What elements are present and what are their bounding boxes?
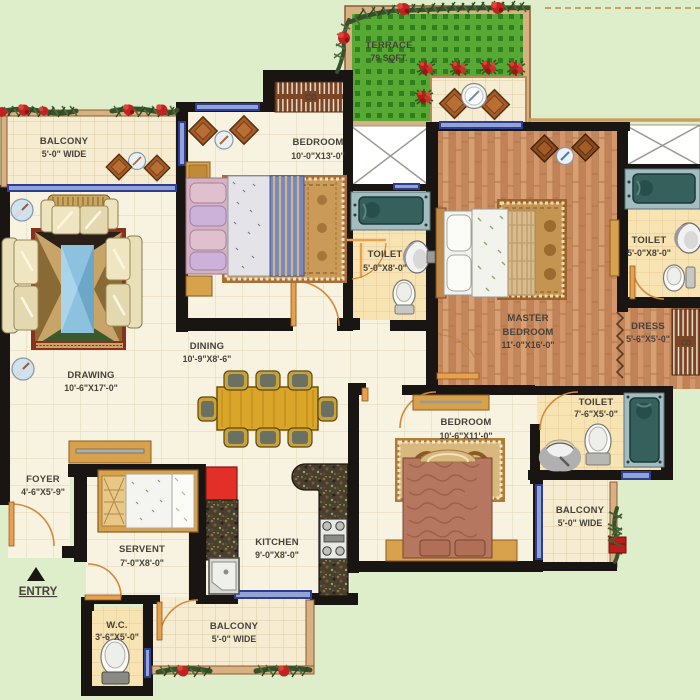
svg-text:KITCHEN: KITCHEN bbox=[255, 537, 299, 548]
svg-text:TOILET: TOILET bbox=[368, 249, 403, 260]
svg-text:10'-0"X13'-0": 10'-0"X13'-0" bbox=[291, 151, 345, 161]
svg-text:10'-6"X17'-0": 10'-6"X17'-0" bbox=[64, 383, 118, 393]
svg-text:CD: CD bbox=[305, 93, 317, 102]
svg-text:3'-6"X5'-0": 3'-6"X5'-0" bbox=[95, 632, 139, 642]
svg-text:BEDROOM: BEDROOM bbox=[502, 327, 553, 338]
svg-text:TOILET: TOILET bbox=[579, 397, 614, 408]
svg-text:CD: CD bbox=[681, 340, 691, 347]
svg-text:SERVENT: SERVENT bbox=[119, 544, 165, 555]
svg-text:11'-0"X16'-0": 11'-0"X16'-0" bbox=[501, 340, 554, 350]
svg-text:W.C.: W.C. bbox=[106, 620, 127, 631]
svg-text:5'-0" WIDE: 5'-0" WIDE bbox=[558, 518, 603, 528]
svg-text:7'-6"X5'-0": 7'-6"X5'-0" bbox=[574, 409, 618, 419]
svg-text:5'-6"X5'-0": 5'-6"X5'-0" bbox=[626, 334, 670, 344]
svg-text:10'-6"X11'-0": 10'-6"X11'-0" bbox=[439, 431, 492, 441]
svg-text:5'-0" WIDE: 5'-0" WIDE bbox=[42, 149, 87, 159]
svg-text:TOILET: TOILET bbox=[632, 235, 667, 246]
svg-text:10'-9"X8'-6": 10'-9"X8'-6" bbox=[183, 354, 232, 364]
svg-text:7'-0"X8'-0": 7'-0"X8'-0" bbox=[120, 558, 164, 568]
svg-text:BALCONY: BALCONY bbox=[40, 136, 89, 147]
svg-text:79 SQFT.: 79 SQFT. bbox=[370, 53, 407, 63]
svg-text:BEDROOM: BEDROOM bbox=[440, 417, 491, 428]
svg-text:5'-0"X8'-0": 5'-0"X8'-0" bbox=[363, 263, 407, 273]
svg-text:MASTER: MASTER bbox=[507, 313, 548, 324]
svg-text:DRAWING: DRAWING bbox=[67, 370, 114, 381]
svg-text:BEDROOM: BEDROOM bbox=[292, 137, 343, 148]
svg-text:5'-0"X8'-0": 5'-0"X8'-0" bbox=[627, 248, 671, 258]
svg-text:BALCONY: BALCONY bbox=[556, 505, 605, 516]
svg-text:DINING: DINING bbox=[190, 341, 224, 352]
svg-text:BALCONY: BALCONY bbox=[210, 621, 259, 632]
svg-text:FOYER: FOYER bbox=[26, 474, 60, 485]
svg-text:ENTRY: ENTRY bbox=[19, 586, 58, 598]
svg-text:4'-6"X5'-9": 4'-6"X5'-9" bbox=[21, 487, 65, 497]
svg-text:9'-0"X8'-0": 9'-0"X8'-0" bbox=[255, 550, 299, 560]
svg-text:DRESS: DRESS bbox=[631, 321, 665, 332]
svg-text:5'-0" WIDE: 5'-0" WIDE bbox=[212, 634, 257, 644]
svg-text:TERRACE: TERRACE bbox=[365, 40, 412, 51]
